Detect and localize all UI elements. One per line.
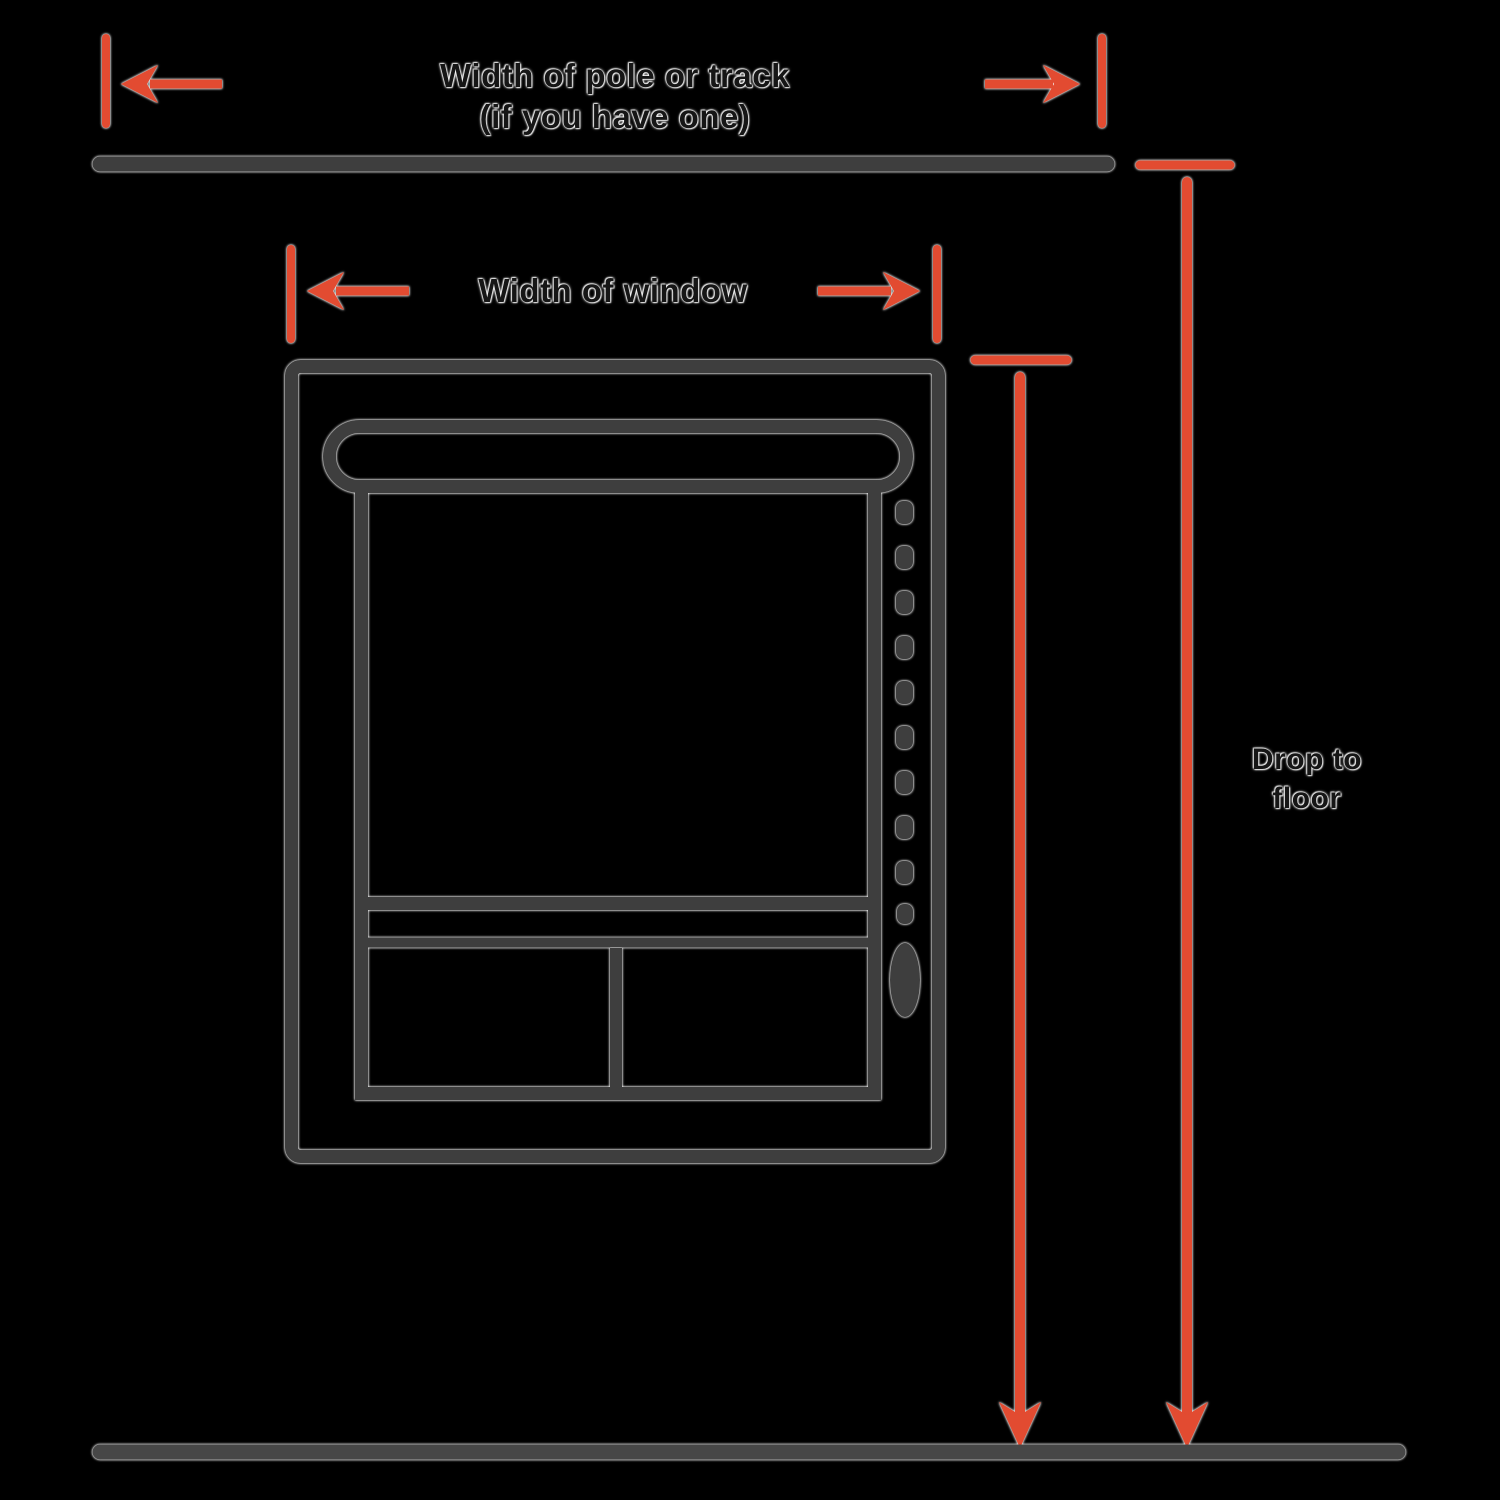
window-illustration — [292, 367, 939, 1157]
blind-chain — [890, 501, 920, 1017]
pole-width-label-line1: Width of pole or track — [315, 55, 915, 96]
window-width-label-text: Width of window — [363, 271, 863, 311]
window-drop-measure — [975, 360, 1067, 1448]
drop-to-floor-label: Drop to floor — [1187, 740, 1427, 818]
pole-width-label-line2: (if you have one) — [315, 96, 915, 137]
drop-label-line1: Drop to — [1187, 740, 1427, 779]
measuring-diagram-canvas: Width of pole or track (if you have one)… — [0, 0, 1500, 1500]
drop-label-line2: floor — [1187, 779, 1427, 818]
pole-arrow-right-icon — [985, 65, 1080, 103]
blind-chain-weight — [890, 943, 920, 1017]
pole-width-label: Width of pole or track (if you have one) — [315, 55, 915, 137]
window-width-label: Width of window — [363, 271, 863, 311]
roller-blind-cassette — [330, 427, 907, 487]
pole-arrow-left-icon — [121, 65, 222, 103]
